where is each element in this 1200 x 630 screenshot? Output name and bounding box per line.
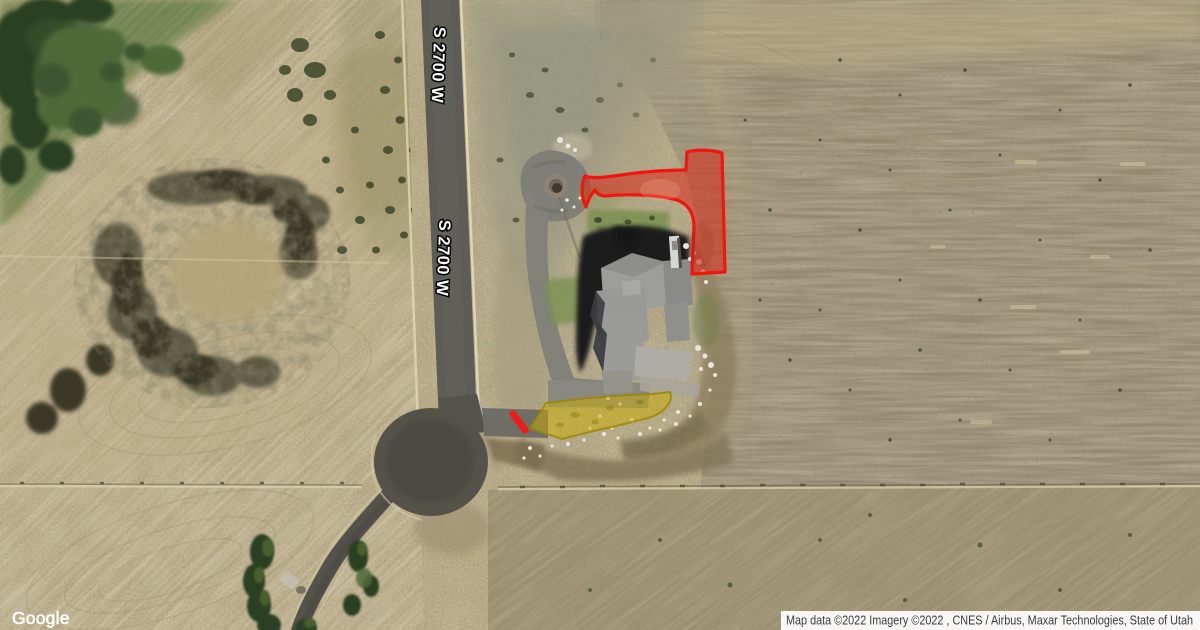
svg-text:S 2700 W: S 2700 W [428,26,449,103]
svg-text:S 2700 W: S 2700 W [433,219,454,296]
svg-text:Google: Google [12,608,70,628]
svg-text:Map data ©2022 Imagery ©2022 ,: Map data ©2022 Imagery ©2022 , CNES / Ai… [786,613,1193,628]
